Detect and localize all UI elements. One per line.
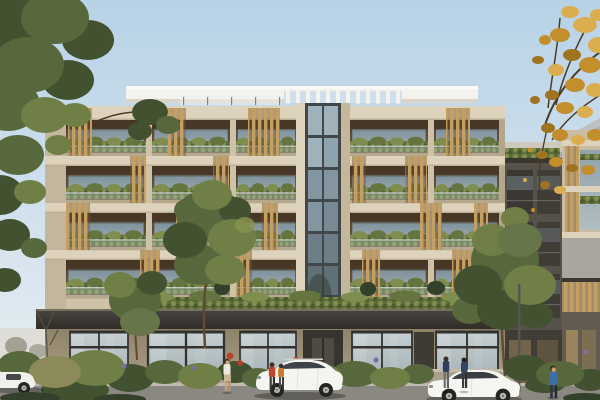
scene-svg xyxy=(0,0,600,400)
main-building xyxy=(36,86,508,398)
terrace-planter-tree xyxy=(427,281,445,295)
roof-pergola xyxy=(284,91,402,103)
roof-slab xyxy=(126,86,478,105)
terrace-planter-tree xyxy=(360,282,376,296)
roof-glass-railing xyxy=(180,97,282,106)
rendering-canvas xyxy=(0,0,600,400)
